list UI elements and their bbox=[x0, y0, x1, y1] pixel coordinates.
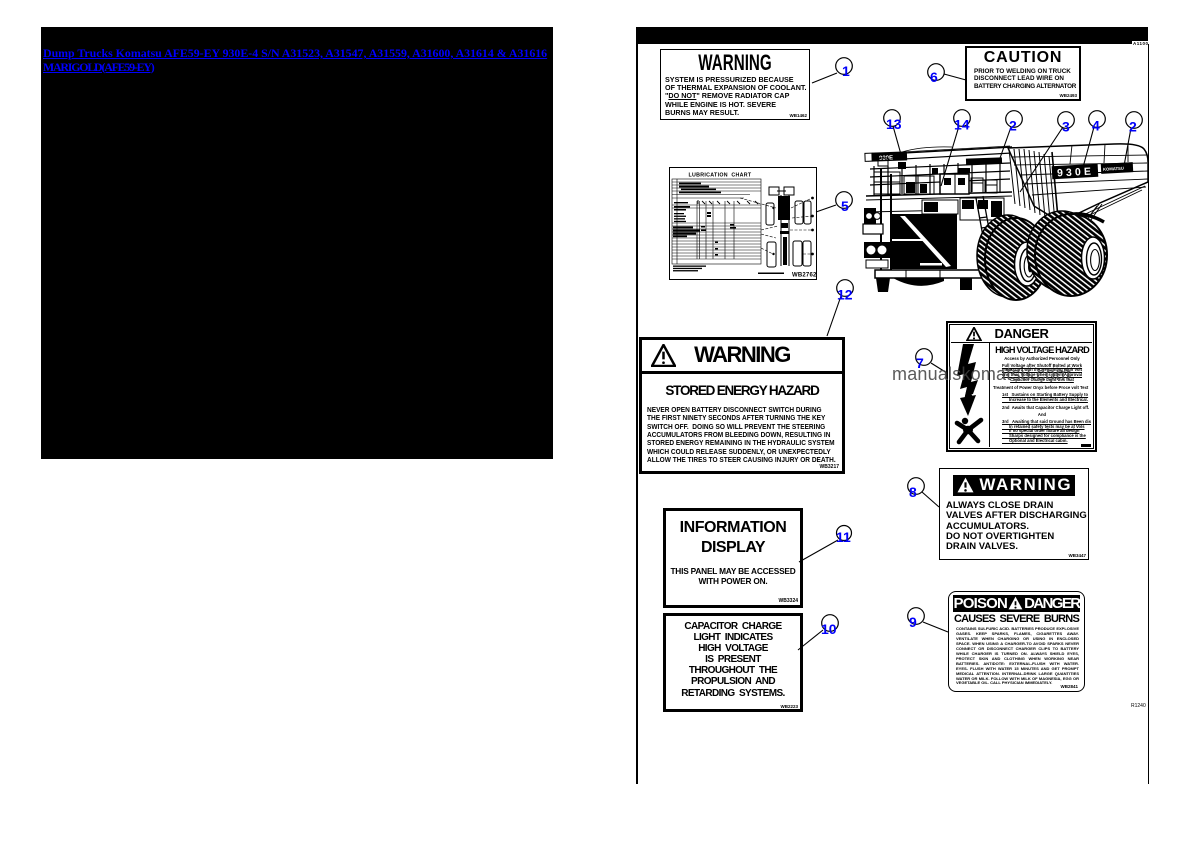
svg-text:3: 3 bbox=[1062, 119, 1070, 135]
svg-text:10: 10 bbox=[821, 621, 837, 637]
svg-text:4: 4 bbox=[1092, 118, 1100, 134]
svg-text:2: 2 bbox=[1009, 118, 1017, 134]
svg-text:11: 11 bbox=[836, 529, 851, 545]
svg-text:2: 2 bbox=[1129, 119, 1137, 135]
svg-text:9: 9 bbox=[909, 614, 917, 630]
svg-text:13: 13 bbox=[886, 116, 902, 132]
svg-text:1: 1 bbox=[842, 63, 850, 79]
svg-text:14: 14 bbox=[954, 117, 970, 133]
svg-text:8: 8 bbox=[909, 484, 917, 500]
svg-text:12: 12 bbox=[837, 287, 853, 303]
svg-text:6: 6 bbox=[930, 69, 938, 85]
svg-text:5: 5 bbox=[841, 198, 849, 214]
